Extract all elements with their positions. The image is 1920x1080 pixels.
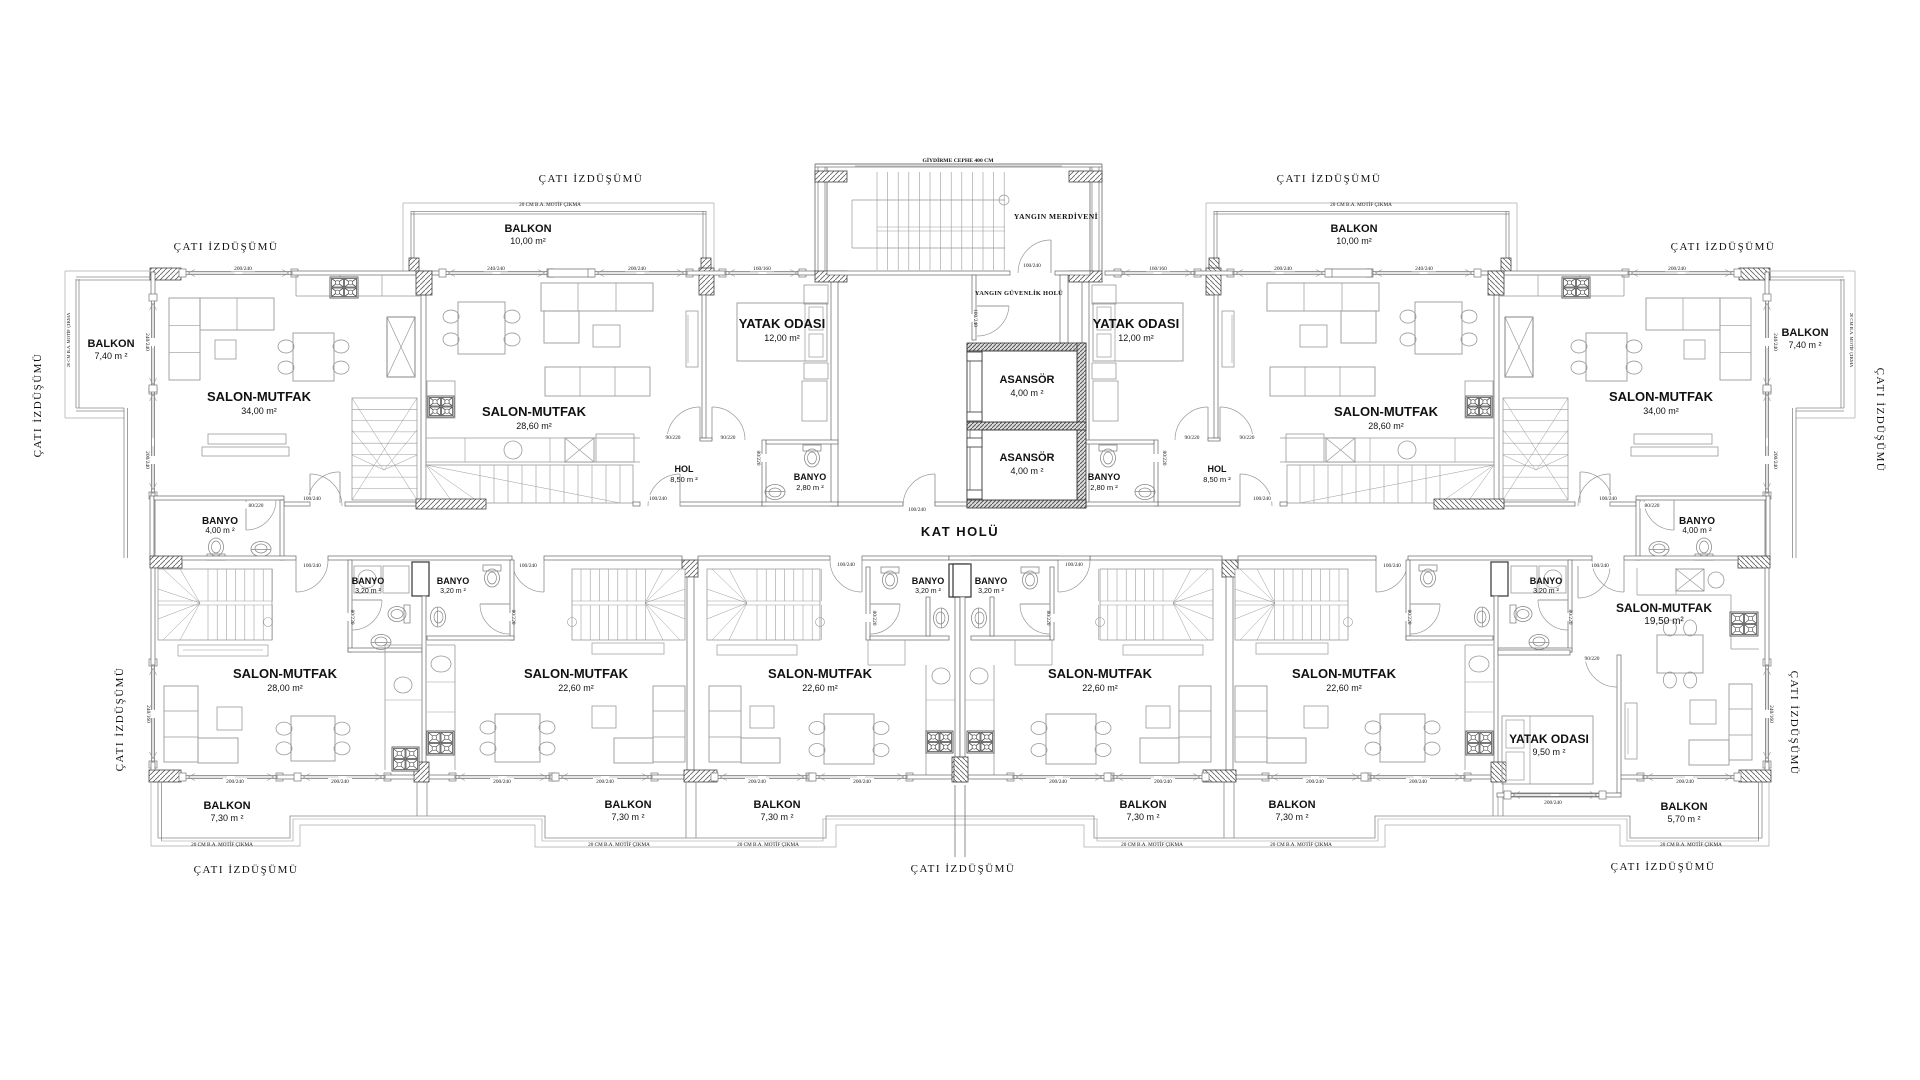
svg-text:BALKON: BALKON — [604, 799, 651, 811]
svg-text:20 CM B.A. MOTİF ÇIKMA: 20 CM B.A. MOTİF ÇIKMA — [1270, 841, 1332, 848]
svg-text:12,00 m²: 12,00 m² — [1118, 333, 1154, 343]
svg-text:20 CM B.A. MOTİF ÇIKMA: 20 CM B.A. MOTİF ÇIKMA — [588, 841, 650, 848]
svg-text:BANYO: BANYO — [794, 472, 827, 482]
svg-text:ÇATI İZDÜŞÜMÜ: ÇATI İZDÜŞÜMÜ — [174, 241, 279, 253]
svg-text:200/240: 200/240 — [1676, 779, 1694, 785]
svg-text:7,30 m ²: 7,30 m ² — [760, 812, 793, 822]
svg-text:200/240: 200/240 — [226, 779, 244, 785]
svg-text:ÇATI İZDÜŞÜMÜ: ÇATI İZDÜŞÜMÜ — [114, 667, 126, 772]
svg-text:200/240: 200/240 — [234, 266, 252, 272]
svg-text:100/240: 100/240 — [303, 563, 321, 569]
svg-text:200/240: 200/240 — [1306, 779, 1324, 785]
svg-text:240/240: 240/240 — [487, 266, 505, 272]
svg-text:200/240: 200/240 — [1409, 779, 1427, 785]
svg-text:100/240: 100/240 — [1591, 563, 1609, 569]
svg-text:7,30 m ²: 7,30 m ² — [1126, 812, 1159, 822]
svg-text:SALON-MUTFAK: SALON-MUTFAK — [207, 389, 312, 404]
svg-text:ÇATI İZDÜŞÜMÜ: ÇATI İZDÜŞÜMÜ — [1671, 241, 1776, 253]
svg-text:ÇATI İZDÜŞÜMÜ: ÇATI İZDÜŞÜMÜ — [1788, 671, 1800, 776]
svg-text:20 CM B.A. MOTİF ÇIKMA: 20 CM B.A. MOTİF ÇIKMA — [1660, 841, 1722, 848]
svg-text:22,60 m²: 22,60 m² — [1082, 683, 1118, 693]
svg-text:YATAK ODASI: YATAK ODASI — [1093, 316, 1179, 331]
svg-text:240/240: 240/240 — [1772, 333, 1778, 351]
svg-text:BALKON: BALKON — [203, 800, 250, 812]
svg-text:4,00 m ²: 4,00 m ² — [205, 526, 235, 535]
svg-text:90/220: 90/220 — [1185, 435, 1200, 441]
svg-text:80/220: 80/220 — [1567, 610, 1573, 625]
svg-text:100/240: 100/240 — [649, 496, 667, 502]
svg-text:ASANSÖR: ASANSÖR — [999, 451, 1054, 464]
svg-text:ASANSÖR: ASANSÖR — [999, 373, 1054, 386]
svg-text:ÇATI İZDÜŞÜMÜ: ÇATI İZDÜŞÜMÜ — [1874, 368, 1886, 473]
svg-text:SALON-MUTFAK: SALON-MUTFAK — [524, 666, 629, 681]
svg-text:100/240: 100/240 — [1599, 496, 1617, 502]
svg-text:240/240: 240/240 — [144, 333, 150, 351]
svg-text:160/160: 160/160 — [753, 266, 771, 272]
svg-text:90/220: 90/220 — [666, 435, 681, 441]
svg-text:10,00 m²: 10,00 m² — [1336, 236, 1372, 246]
svg-text:SALON-MUTFAK: SALON-MUTFAK — [1334, 404, 1439, 419]
svg-text:BANYO: BANYO — [1530, 576, 1563, 586]
svg-text:SALON-MUTFAK: SALON-MUTFAK — [768, 666, 873, 681]
svg-text:100/240: 100/240 — [1065, 562, 1083, 568]
svg-text:BANYO: BANYO — [975, 576, 1008, 586]
svg-text:200/240: 200/240 — [1154, 779, 1172, 785]
svg-text:BALKON: BALKON — [753, 799, 800, 811]
svg-text:7,30 m ²: 7,30 m ² — [611, 812, 644, 822]
svg-text:3,20 m ²: 3,20 m ² — [355, 588, 381, 595]
svg-text:100/240: 100/240 — [837, 562, 855, 568]
svg-text:80/220: 80/220 — [1161, 451, 1167, 466]
svg-text:SALON-MUTFAK: SALON-MUTFAK — [482, 404, 587, 419]
svg-text:80/220: 80/220 — [249, 503, 264, 509]
svg-text:100/240: 100/240 — [972, 309, 978, 327]
svg-text:BALKON: BALKON — [1268, 799, 1315, 811]
svg-text:20 CM B.A. MOTİF ÇIKMA: 20 CM B.A. MOTİF ÇIKMA — [1849, 313, 1854, 368]
svg-text:YANGIN MERDİVENİ: YANGIN MERDİVENİ — [1014, 211, 1098, 221]
svg-text:80/220: 80/220 — [755, 451, 761, 466]
svg-text:4,00 m ²: 4,00 m ² — [1010, 388, 1043, 398]
svg-text:3,20 m ²: 3,20 m ² — [978, 588, 1004, 595]
svg-text:ÇATI İZDÜŞÜMÜ: ÇATI İZDÜŞÜMÜ — [1611, 861, 1716, 873]
svg-text:80/220: 80/220 — [871, 611, 877, 626]
svg-text:80/220: 80/220 — [510, 610, 516, 625]
svg-text:4,00 m ²: 4,00 m ² — [1010, 466, 1043, 476]
svg-text:BALKON: BALKON — [1781, 327, 1828, 339]
svg-text:ÇATI İZDÜŞÜMÜ: ÇATI İZDÜŞÜMÜ — [1277, 173, 1382, 185]
svg-text:80/220: 80/220 — [349, 610, 355, 625]
svg-text:4,00 m ²: 4,00 m ² — [1682, 526, 1712, 535]
svg-text:100/240: 100/240 — [303, 496, 321, 502]
svg-text:BANYO: BANYO — [352, 576, 385, 586]
svg-text:8,50 m ²: 8,50 m ² — [1203, 475, 1231, 484]
svg-text:3,20 m ²: 3,20 m ² — [440, 588, 466, 595]
svg-text:YATAK ODASI: YATAK ODASI — [1509, 732, 1589, 746]
svg-text:200/240: 200/240 — [596, 779, 614, 785]
svg-text:200/240: 200/240 — [853, 779, 871, 785]
svg-text:9,50 m ²: 9,50 m ² — [1532, 747, 1565, 757]
svg-text:10,00 m²: 10,00 m² — [510, 236, 546, 246]
svg-text:SALON-MUTFAK: SALON-MUTFAK — [1048, 666, 1153, 681]
svg-text:34,00 m²: 34,00 m² — [241, 406, 277, 416]
svg-text:ÇATI İZDÜŞÜMÜ: ÇATI İZDÜŞÜMÜ — [194, 864, 299, 876]
svg-text:ÇATI İZDÜŞÜMÜ: ÇATI İZDÜŞÜMÜ — [911, 863, 1016, 875]
svg-text:20 CM B.A. MOTİF ÇIKMA: 20 CM B.A. MOTİF ÇIKMA — [519, 201, 581, 208]
svg-text:YATAK ODASI: YATAK ODASI — [739, 316, 825, 331]
svg-text:20 CM B.A. MOTİF ÇIKMA: 20 CM B.A. MOTİF ÇIKMA — [737, 841, 799, 848]
svg-text:240/240: 240/240 — [1415, 266, 1433, 272]
svg-text:20 CM B.A. MOTİF ÇIKMA: 20 CM B.A. MOTİF ÇIKMA — [191, 841, 253, 848]
svg-text:HOL: HOL — [675, 464, 695, 474]
svg-text:5,70 m ²: 5,70 m ² — [1667, 814, 1700, 824]
svg-text:BALKON: BALKON — [87, 338, 134, 350]
svg-text:12,00 m²: 12,00 m² — [764, 333, 800, 343]
svg-text:240/160: 240/160 — [145, 705, 151, 723]
svg-text:20 CM B.A. MOTİF ÇIKMA: 20 CM B.A. MOTİF ÇIKMA — [66, 312, 71, 367]
svg-text:240/160: 240/160 — [1768, 705, 1774, 723]
svg-text:28,60 m²: 28,60 m² — [516, 421, 552, 431]
svg-text:SALON-MUTFAK: SALON-MUTFAK — [233, 666, 338, 681]
svg-text:2,80 m ²: 2,80 m ² — [796, 483, 824, 492]
svg-text:7,40 m ²: 7,40 m ² — [1788, 340, 1821, 350]
svg-text:90/220: 90/220 — [1585, 656, 1600, 662]
svg-text:28,00 m²: 28,00 m² — [267, 683, 303, 693]
svg-text:BALKON: BALKON — [1330, 223, 1377, 235]
svg-text:34,00 m²: 34,00 m² — [1643, 406, 1679, 416]
svg-text:BALKON: BALKON — [1660, 801, 1707, 813]
svg-text:GİYDİRME CEPHE 400 CM: GİYDİRME CEPHE 400 CM — [922, 157, 994, 164]
svg-text:90/220: 90/220 — [721, 435, 736, 441]
svg-text:7,30 m ²: 7,30 m ² — [1275, 812, 1308, 822]
svg-text:200/240: 200/240 — [748, 779, 766, 785]
svg-text:100/240: 100/240 — [1023, 263, 1041, 269]
svg-text:200/240: 200/240 — [144, 451, 150, 469]
svg-text:BANYO: BANYO — [437, 576, 470, 586]
svg-text:100/240: 100/240 — [519, 563, 537, 569]
svg-text:80/220: 80/220 — [1645, 503, 1660, 509]
svg-text:100/240: 100/240 — [908, 507, 926, 513]
svg-text:200/240: 200/240 — [1274, 266, 1292, 272]
svg-text:200/240: 200/240 — [628, 266, 646, 272]
svg-text:28,60 m²: 28,60 m² — [1368, 421, 1404, 431]
svg-text:20 CM B.A. MOTİF ÇIKMA: 20 CM B.A. MOTİF ÇIKMA — [1121, 841, 1183, 848]
svg-text:7,40 m ²: 7,40 m ² — [94, 351, 127, 361]
svg-text:YANGIN GÜVENLİK HOLÜ: YANGIN GÜVENLİK HOLÜ — [975, 290, 1063, 297]
svg-text:3,20 m ²: 3,20 m ² — [915, 588, 941, 595]
svg-text:200/240: 200/240 — [1544, 800, 1562, 806]
svg-text:BANYO: BANYO — [912, 576, 945, 586]
svg-text:KAT HOLÜ: KAT HOLÜ — [921, 524, 999, 539]
svg-text:19,50 m²: 19,50 m² — [1644, 616, 1684, 627]
svg-text:BALKON: BALKON — [504, 223, 551, 235]
svg-text:80/220: 80/220 — [1406, 610, 1412, 625]
svg-text:20 CM B.A. MOTİF ÇIKMA: 20 CM B.A. MOTİF ÇIKMA — [1330, 201, 1392, 208]
svg-text:80/220: 80/220 — [1045, 611, 1051, 626]
svg-text:200/240: 200/240 — [1049, 779, 1067, 785]
svg-text:200/240: 200/240 — [1772, 451, 1778, 469]
svg-text:200/240: 200/240 — [493, 779, 511, 785]
svg-text:90/220: 90/220 — [1240, 435, 1255, 441]
svg-text:SALON-MUTFAK: SALON-MUTFAK — [1292, 666, 1397, 681]
svg-text:3,20 m ²: 3,20 m ² — [1533, 588, 1559, 595]
svg-text:200/240: 200/240 — [1668, 266, 1686, 272]
svg-text:100/240: 100/240 — [1253, 496, 1271, 502]
svg-text:2,80 m ²: 2,80 m ² — [1090, 483, 1118, 492]
svg-text:ÇATI İZDÜŞÜMÜ: ÇATI İZDÜŞÜMÜ — [539, 173, 644, 185]
svg-text:BALKON: BALKON — [1119, 799, 1166, 811]
svg-text:SALON-MUTFAK: SALON-MUTFAK — [1616, 601, 1712, 615]
svg-text:8,50 m ²: 8,50 m ² — [670, 475, 698, 484]
svg-text:22,60 m²: 22,60 m² — [802, 683, 838, 693]
svg-text:100/240: 100/240 — [1383, 563, 1401, 569]
svg-text:HOL: HOL — [1208, 464, 1228, 474]
svg-text:ÇATI İZDÜŞÜMÜ: ÇATI İZDÜŞÜMÜ — [32, 353, 44, 458]
svg-text:160/160: 160/160 — [1149, 266, 1167, 272]
svg-text:200/240: 200/240 — [331, 779, 349, 785]
svg-text:BANYO: BANYO — [1088, 472, 1121, 482]
svg-text:7,30 m ²: 7,30 m ² — [210, 813, 243, 823]
svg-text:22,60 m²: 22,60 m² — [558, 683, 594, 693]
svg-text:22,60 m²: 22,60 m² — [1326, 683, 1362, 693]
svg-text:SALON-MUTFAK: SALON-MUTFAK — [1609, 389, 1714, 404]
